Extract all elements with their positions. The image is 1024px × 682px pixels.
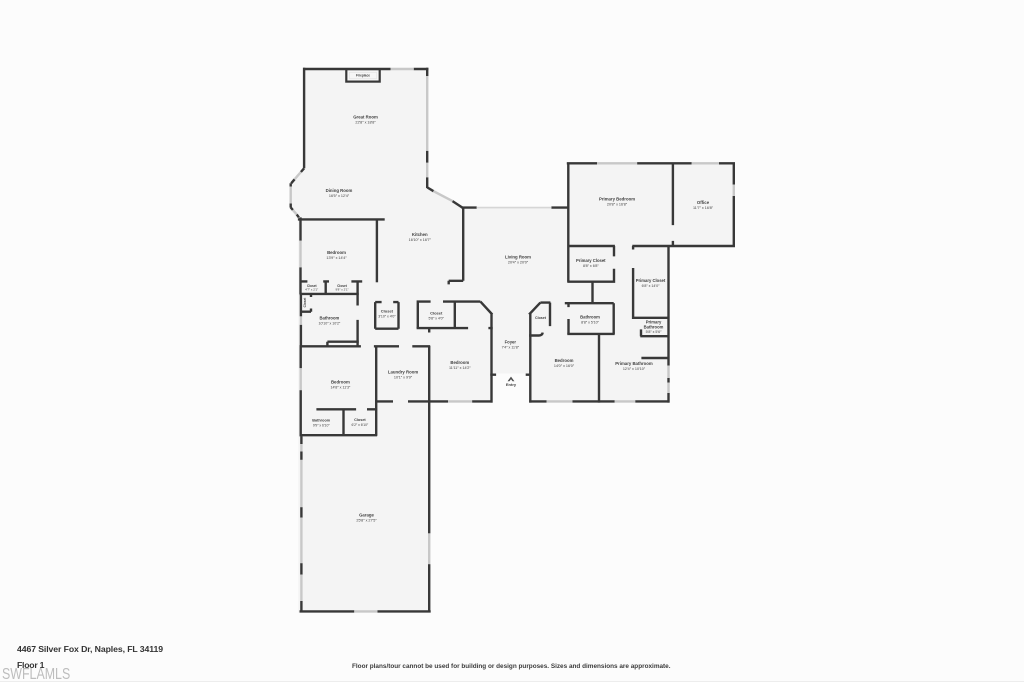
svg-text:Bathroom: Bathroom	[312, 419, 331, 423]
svg-text:10′10″ x 10′2″: 10′10″ x 10′2″	[319, 321, 341, 325]
svg-text:11′7″ x 16′8″: 11′7″ x 16′8″	[693, 206, 714, 210]
svg-text:10′1″ x 9′9″: 10′1″ x 9′9″	[394, 376, 413, 380]
svg-text:Garage: Garage	[359, 513, 374, 518]
svg-text:Bedroom: Bedroom	[450, 360, 469, 365]
svg-text:3′10″ x 4′0″: 3′10″ x 4′0″	[378, 315, 396, 319]
svg-text:8′8″ x 6′8″: 8′8″ x 6′8″	[583, 264, 599, 268]
svg-text:Living Room: Living Room	[505, 255, 531, 260]
svg-text:Bedroom: Bedroom	[555, 358, 574, 363]
svg-text:20′8″ x 16′8″: 20′8″ x 16′8″	[607, 203, 628, 207]
svg-text:Bathroom: Bathroom	[320, 315, 340, 320]
svg-text:Entry: Entry	[506, 382, 517, 387]
svg-text:9′8″ x 2′1″: 9′8″ x 2′1″	[335, 288, 348, 292]
svg-text:Great Room: Great Room	[353, 115, 378, 120]
svg-text:Closet: Closet	[430, 311, 443, 316]
svg-text:Primary Closet: Primary Closet	[576, 258, 606, 263]
svg-text:Bathroom: Bathroom	[644, 324, 664, 329]
svg-text:16′10″ x 16′7″: 16′10″ x 16′7″	[409, 238, 432, 242]
svg-text:7′4″ x 11′8″: 7′4″ x 11′8″	[502, 346, 520, 350]
svg-text:5′8″ x 4′0″: 5′8″ x 4′0″	[429, 317, 445, 321]
svg-text:13′9″ x 14′4″: 13′9″ x 14′4″	[326, 256, 347, 260]
svg-text:Foyer: Foyer	[505, 340, 517, 345]
svg-text:8′8″ x 5′10″: 8′8″ x 5′10″	[581, 321, 599, 325]
svg-text:22′8″ x 18′8″: 22′8″ x 18′8″	[355, 121, 376, 125]
svg-text:Closet: Closet	[303, 297, 307, 308]
svg-text:Fireplace: Fireplace	[356, 74, 370, 78]
svg-text:Office: Office	[697, 200, 710, 205]
svg-text:Bedroom: Bedroom	[331, 380, 350, 385]
svg-text:Primary Bathroom: Primary Bathroom	[615, 361, 653, 366]
svg-text:Closet: Closet	[354, 418, 366, 422]
svg-text:6′8″ x 14′0″: 6′8″ x 14′0″	[642, 284, 660, 288]
svg-text:20′4″ x 20′0″: 20′4″ x 20′0″	[508, 261, 529, 265]
svg-text:Laundry Room: Laundry Room	[388, 370, 418, 375]
svg-text:Kitchen: Kitchen	[412, 232, 428, 237]
svg-text:5′8″ x 5′6″: 5′8″ x 5′6″	[646, 330, 662, 334]
svg-text:9′9″ x 6′10″: 9′9″ x 6′10″	[313, 424, 330, 428]
svg-text:Dining Room: Dining Room	[326, 188, 353, 193]
svg-text:6′2″ x 6′10″: 6′2″ x 6′10″	[352, 423, 369, 427]
svg-text:4′7″ x 2′1″: 4′7″ x 2′1″	[305, 288, 318, 292]
svg-text:Bedroom: Bedroom	[327, 250, 346, 255]
svg-text:Primary Bedroom: Primary Bedroom	[599, 197, 635, 202]
svg-text:Bathroom: Bathroom	[580, 315, 600, 320]
svg-text:14′8″ x 11′3″: 14′8″ x 11′3″	[330, 386, 351, 390]
svg-text:Primary Closet: Primary Closet	[636, 278, 666, 283]
svg-text:14′0″ x 16′0″: 14′0″ x 16′0″	[554, 364, 575, 368]
svg-text:25′8″ x 27′5″: 25′8″ x 27′5″	[356, 519, 377, 523]
svg-text:Closet: Closet	[535, 316, 547, 320]
svg-text:Closet: Closet	[381, 309, 394, 314]
svg-text:12′4″ x 10′10″: 12′4″ x 10′10″	[623, 367, 646, 371]
svg-text:16′5″ x 12′4″: 16′5″ x 12′4″	[329, 194, 350, 198]
svg-text:11′11″ x 14′2″: 11′11″ x 14′2″	[449, 366, 471, 370]
